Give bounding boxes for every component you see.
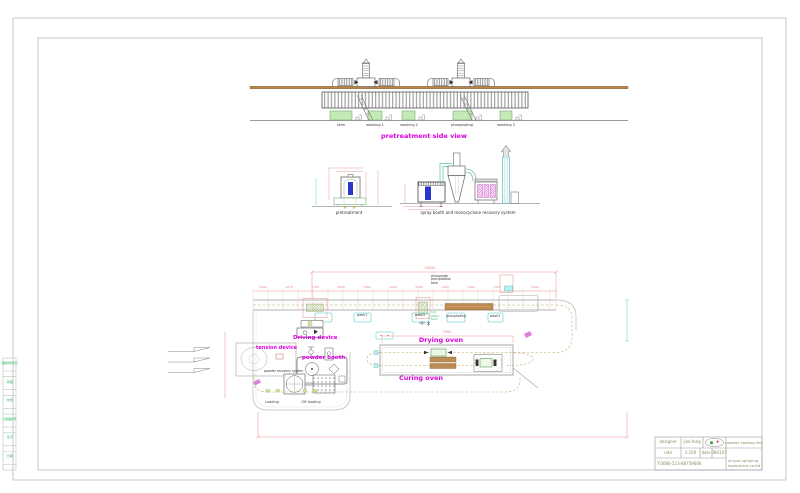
driving-device-label: Driving device [293,335,338,341]
revision-strip-cell: 日 期 [7,455,13,458]
offloading-label: Off-loading [301,401,320,405]
company-logo [710,441,719,445]
spray-booth-recovery-drawing [400,146,540,210]
wash3-label: wash3 [490,315,500,319]
dim-chain-label: 1400 [441,286,449,289]
dim-chain-label: 1700 [493,286,501,289]
cad-linework [0,0,800,493]
phone-number: T:0086-523-88759666 [657,462,701,466]
dim-chain-label: 1000 [389,286,397,289]
tank-label-washing2: washing 2 [400,124,418,128]
spray-booth-caption: spray booth and monocyclone recovery sys… [420,211,515,215]
tank-label-skim: skim [337,124,345,128]
plan-view-drawing [168,271,629,439]
powder-recovery-label: powder recovery system [264,370,303,374]
drying-oven-label: Drying oven [419,337,463,344]
hot-water-line: tank [431,318,440,322]
wash2-label: wash2 [415,314,425,318]
rate-value: 1:100 [685,451,697,455]
pretreatment-caption: pretreatment [336,211,363,215]
powder-booth-label: powder booth [302,355,345,361]
loading-label: Loading [265,401,279,405]
dim-chain-label: 2275 [285,286,293,289]
drawing-sheet: 借通用件登记 审 图 校 准 旧底图总号 签 字 日 期 skim washin… [0,0,800,493]
tension-device-label: tension device [256,346,297,352]
dim-chain-label: 1700 [311,286,319,289]
dim-chain-label: 3200 [531,286,539,289]
revision-strip-cell: 审 图 [7,381,13,384]
side-view-caption: pretreatment side view [381,133,467,140]
revision-strip-cell: 校 准 [7,399,13,402]
date-label: date [701,451,710,455]
dim-chain-label: 3450 [363,286,371,289]
overall-dimension: 24050 [424,267,435,271]
curing-oven-label: Curing oven [399,375,443,382]
pretreatment-tanks [330,111,512,120]
project-name: powder coating line [725,441,763,445]
rate-label: rate [664,451,672,455]
hot-water-tank-label: hot water tank [431,311,440,322]
designer-label: designer [659,440,676,444]
designer-value: jiao feng [683,440,700,444]
tank-label-phosphating: phosphating [451,124,473,128]
tank-label-washing3: washing 3 [497,124,515,128]
pretreatment-section-drawing [312,168,392,209]
dim-chain-label: 1000 [467,286,475,289]
dim-chain-label: 2500 [259,286,267,289]
tank-label-washing1: washing 1 [366,124,384,128]
pretreatment-side-view-drawing [250,59,628,121]
company-line: equipment co.ltd [728,464,760,469]
dim-chain-label: 3445 [415,286,423,289]
wash1-label: wash1 [357,314,367,318]
date-value: 080107 [711,451,726,455]
oven-dimension: 7000 [443,331,452,335]
phosphate-tank-label: phosphate precipitation tank [431,275,451,287]
company-name: xinyue spraying equipment co.ltd [728,459,760,468]
revision-strip-cell: 签 字 [7,436,13,439]
dim-chain-label: 3000 [337,286,345,289]
phosphating-label: phosphating [446,315,466,319]
revision-strip-cell: 借通用件登记 [2,362,18,365]
revision-strip-cell: 旧底图总号 [3,418,16,421]
